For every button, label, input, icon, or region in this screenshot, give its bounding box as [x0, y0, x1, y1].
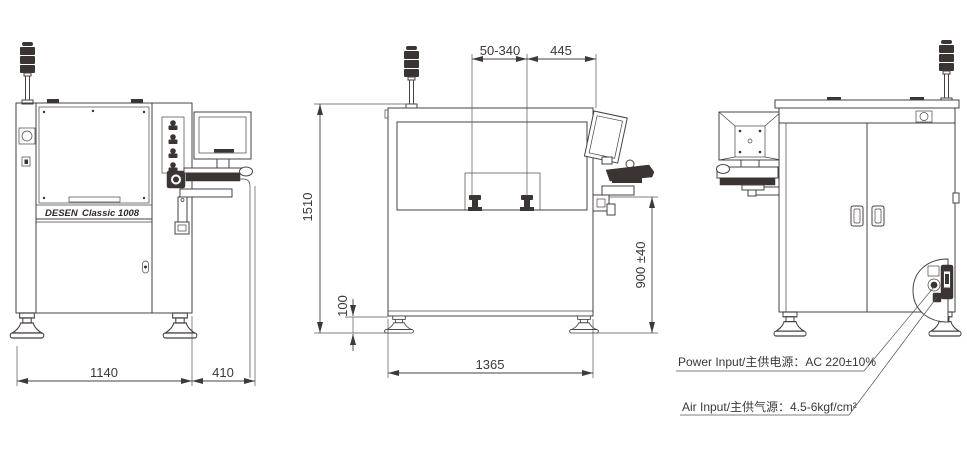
- top-lid: [775, 100, 959, 108]
- drawing-canvas: DESEN Classic 1008: [0, 0, 967, 462]
- power-input-callout: Power Input/主供电源：AC 220±10%: [678, 355, 876, 369]
- mouse: [240, 167, 253, 176]
- dim-work-height: 900 ±40: [633, 242, 648, 289]
- mouse-rear: [717, 165, 730, 174]
- air-fitting-icon: [169, 120, 178, 130]
- dim-rail-travel: 50-340: [480, 43, 520, 58]
- air-input-callout: Air Input/主供气源：4.5-6kgf/cm²: [682, 399, 857, 414]
- brand-logo: DESEN: [45, 208, 79, 219]
- side-right-foot: [570, 316, 599, 333]
- keyboard: [186, 173, 240, 181]
- support-arm: [180, 189, 232, 197]
- monitor-stand: [217, 159, 229, 168]
- front-machine-body: DESEN Classic 1008: [16, 99, 192, 313]
- side-monitor-assembly: [584, 111, 654, 215]
- air-fitting-icon: [169, 162, 178, 172]
- arm-envelope-outline: [196, 179, 250, 378]
- tower-light-rear: [939, 40, 954, 102]
- arm-side: [602, 186, 634, 195]
- tower-light-front: [20, 42, 35, 104]
- dim-front-width: 1140: [90, 365, 118, 380]
- front-left-foot: [10, 313, 44, 338]
- dim-arm-depth: 410: [212, 365, 234, 380]
- top-lug: [47, 99, 59, 103]
- model-label: Classic 1008: [82, 208, 140, 219]
- front-door-panel: [39, 107, 149, 203]
- hinge-tab: [953, 193, 959, 203]
- dim-base-height: 100: [335, 295, 350, 317]
- dim-monitor-offset: 445: [550, 43, 572, 58]
- side-view: 50-340 445 1510 100 900 ±40 1365: [300, 43, 658, 378]
- fitting-panel: [162, 117, 184, 173]
- keyboard-tray: [184, 168, 242, 173]
- tower-light-side: [404, 46, 419, 108]
- dimensional-drawing: DESEN Classic 1008: [0, 0, 967, 462]
- door-handle-slot: [69, 197, 120, 202]
- side-left-foot: [385, 316, 414, 333]
- monitor-back: [719, 112, 781, 160]
- power-button: [19, 128, 35, 144]
- air-fitting-icon: [169, 134, 178, 144]
- front-view: DESEN Classic 1008: [10, 42, 255, 386]
- top-lug: [131, 99, 143, 103]
- rear-left-foot: [774, 312, 806, 336]
- arm-mount-box: [175, 222, 189, 234]
- rear-monitor-assembly: [717, 112, 782, 196]
- rear-view: Power Input/主供电源：AC 220±10% Air Input/主供…: [676, 40, 961, 415]
- dim-side-width: 1365: [476, 357, 505, 372]
- dim-total-height: 1510: [300, 193, 315, 222]
- air-fitting-icon: [169, 148, 178, 158]
- side-machine-body: [385, 108, 593, 316]
